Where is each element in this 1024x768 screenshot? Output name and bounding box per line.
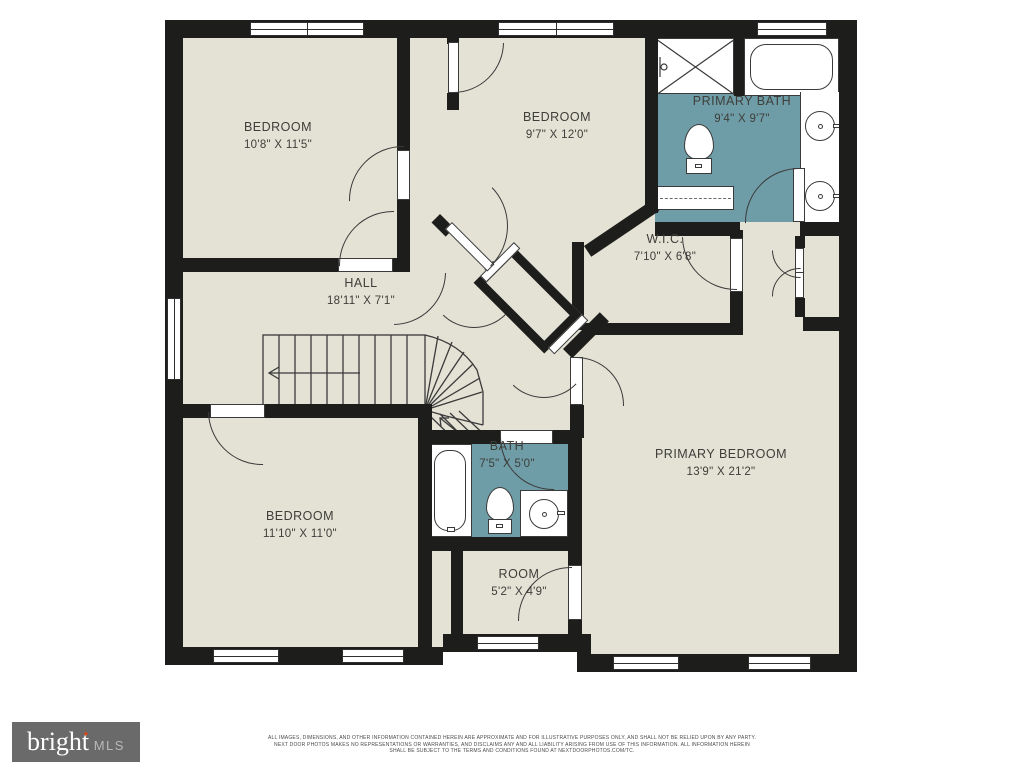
disclaimer-line: SHALL BE SUBJECT TO THE TERMS AND CONDIT… xyxy=(182,748,842,755)
window xyxy=(757,22,827,36)
toilet xyxy=(484,487,516,539)
room-label-room: ROOM5'2" X 4'9" xyxy=(491,567,547,598)
wall-segment xyxy=(447,93,459,110)
room-label-bedroom-1: BEDROOM10'8" X 11'5" xyxy=(244,120,312,151)
wall-segment xyxy=(568,430,582,551)
wall-segment xyxy=(730,230,743,238)
wall-segment xyxy=(570,405,584,438)
logo-star-icon: ✦ xyxy=(82,729,90,740)
plan-shape xyxy=(557,511,565,515)
window xyxy=(477,636,539,650)
wall-segment xyxy=(803,317,845,331)
bright-mls-logo: bright ✦ MLS xyxy=(12,722,140,762)
window xyxy=(613,656,679,670)
room-label-bedroom-2: BEDROOM9'7" X 12'0" xyxy=(523,110,591,141)
disclaimer-text: ALL IMAGES, DIMENSIONS, AND OTHER INFORM… xyxy=(182,735,842,755)
linen-shelf xyxy=(657,186,734,210)
wall-segment xyxy=(265,404,432,418)
shower xyxy=(655,38,734,94)
wall-segment xyxy=(795,298,805,317)
floor-plan-page: BEDROOM10'8" X 11'5" BEDROOM9'7" X 12'0"… xyxy=(0,0,1024,768)
wall-segment xyxy=(451,538,463,634)
wall-segment xyxy=(568,620,582,641)
plan-shape xyxy=(447,527,455,532)
room-label-wic: W.I.C.7'10" X 6'8" xyxy=(634,232,696,263)
wall-segment xyxy=(645,38,658,213)
bathtub xyxy=(744,38,839,96)
window xyxy=(213,649,279,663)
window xyxy=(498,22,614,36)
sink xyxy=(805,111,835,141)
sink xyxy=(529,499,559,529)
wall-segment xyxy=(730,292,743,330)
wall-segment xyxy=(568,551,582,565)
disclaimer-line: ALL IMAGES, DIMENSIONS, AND OTHER INFORM… xyxy=(182,735,842,742)
window xyxy=(167,298,181,380)
room-label-bath: BATH7'5" X 5'0" xyxy=(479,439,535,470)
wall-segment xyxy=(839,20,857,672)
outside-trim xyxy=(443,652,583,672)
room-label-bedroom-3: BEDROOM11'10" X 11'0" xyxy=(263,509,337,540)
wall-segment xyxy=(582,323,743,335)
wall-segment xyxy=(165,404,210,418)
logo-wordmark: bright xyxy=(27,729,89,755)
wall-segment xyxy=(393,258,410,272)
toilet xyxy=(682,124,716,182)
logo-suffix: MLS xyxy=(94,738,125,753)
wall-segment xyxy=(428,537,582,551)
wall-segment xyxy=(397,38,410,150)
room-label-primary-bedroom: PRIMARY BEDROOM13'9" X 21'2" xyxy=(655,447,787,478)
outside-trim xyxy=(165,665,443,675)
wall-segment xyxy=(800,222,845,236)
wall-segment xyxy=(165,258,338,272)
vanity-counter xyxy=(800,92,839,222)
window xyxy=(342,649,404,663)
wall-segment xyxy=(734,38,744,96)
bathtub xyxy=(428,444,472,537)
wall-segment xyxy=(795,236,805,248)
window xyxy=(250,22,364,36)
window xyxy=(748,656,811,670)
sink xyxy=(805,181,835,211)
vanity-counter xyxy=(520,490,568,537)
room-label-hall: HALL18'11" X 7'1" xyxy=(327,276,395,307)
room-label-primary-bath: PRIMARY BATH9'4" X 9'7" xyxy=(693,94,791,125)
